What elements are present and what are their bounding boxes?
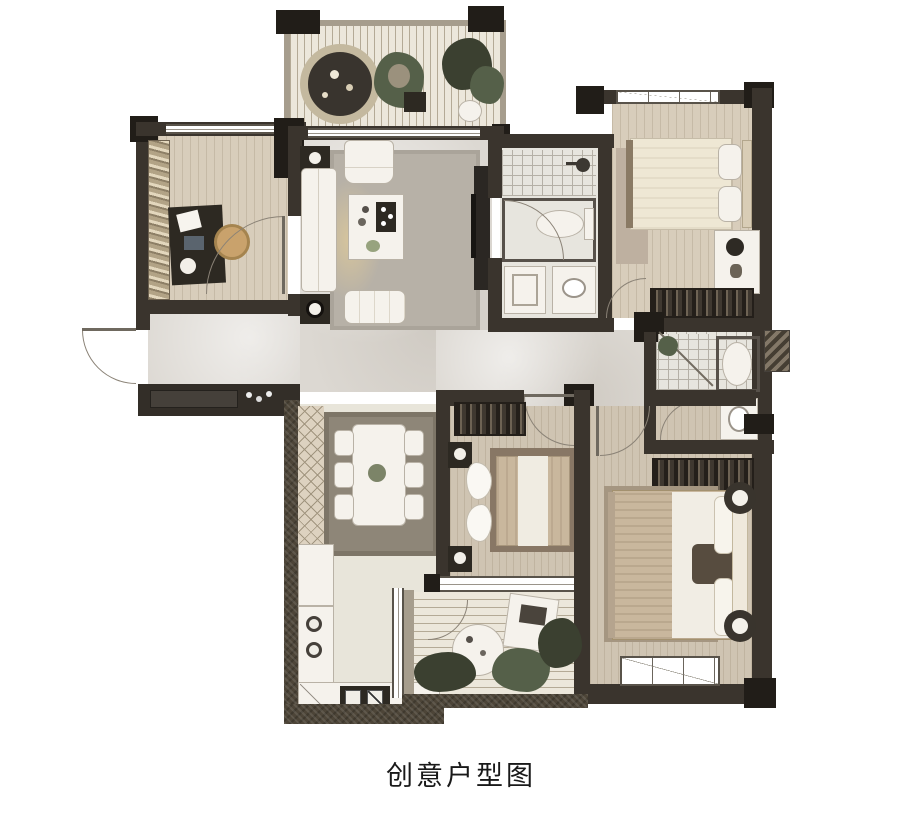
balcony-rail-west: [404, 590, 414, 700]
bedroom-north-headboard: [742, 140, 752, 228]
dining-chair: [404, 494, 424, 520]
nightstand-lamp: [454, 448, 466, 460]
cooktop-burner: [306, 616, 322, 632]
bedroom-north-bed: [630, 138, 732, 230]
tv-screen: [471, 194, 476, 258]
plan-caption: 创意户型图: [0, 754, 922, 793]
master-door-leaf: [596, 406, 599, 456]
bath-main-cabinet-inner: [512, 274, 538, 306]
dining-tiled-band: [298, 406, 324, 544]
dining-chair: [404, 430, 424, 456]
lounge-cushion: [519, 604, 547, 625]
coffee-table-plant: [366, 240, 380, 252]
fire-pit-decor-dot: [330, 70, 339, 79]
coffee-table-decor: [358, 218, 366, 226]
toilet-main-tank: [584, 208, 594, 240]
tray-decor-dot: [381, 221, 386, 226]
nightstand-lamp: [454, 552, 466, 564]
bath-main-wall-west-upper: [488, 134, 502, 198]
living-bench: [344, 290, 406, 324]
balcony-table-decor: [466, 636, 473, 643]
master-window: [620, 656, 720, 686]
dining-chair: [334, 462, 354, 488]
bedroom-north-wardrobe: [650, 288, 754, 318]
bedroom-north-bed-footboard: [626, 140, 633, 228]
ensuite-wall-south: [644, 440, 774, 454]
bath-main-sink: [562, 278, 586, 298]
dining-chair: [334, 494, 354, 520]
fire-pit-table: [300, 44, 380, 124]
bedroom-middle-wardrobe: [454, 402, 526, 436]
balcony-pillar-nw: [424, 574, 440, 592]
bedroom-north-wall-south-e: [646, 318, 772, 332]
corridor-wall-south-east: [650, 390, 756, 406]
east-wall-pillar: [744, 414, 774, 434]
kitchen-counter-upper: [298, 544, 334, 606]
balcony-wall-south: [402, 694, 588, 708]
ensuite-toilet: [722, 342, 752, 386]
living-sofa: [301, 168, 337, 292]
tray-decor-dot: [388, 214, 393, 219]
ac-platform-east: [764, 330, 790, 372]
bedroom-middle-door-leaf: [524, 394, 574, 397]
dining-centerpiece: [368, 464, 386, 482]
study-wall-south: [136, 300, 304, 314]
study-bookshelf: [148, 140, 170, 300]
bedroom-north-window: [616, 90, 720, 104]
master-lamp: [732, 618, 748, 634]
bedroom-middle-balcony-door: [438, 576, 588, 592]
terrace-plant-small: [470, 66, 504, 104]
study-laptop: [184, 236, 204, 250]
fire-pit-decor-dot: [322, 92, 328, 98]
terrace-pillar-nw: [276, 10, 320, 34]
bath-main-wall-south: [488, 318, 614, 332]
side-table-lamp: [309, 152, 321, 164]
entry-door-leaf: [82, 328, 136, 331]
bedroom-north-desk-plant: [730, 264, 742, 278]
fire-pit-decor-dot: [346, 84, 353, 91]
shower-arm: [566, 162, 578, 165]
balcony-table-decor: [480, 650, 486, 656]
wall-junction: [574, 390, 590, 406]
terrace-teddy-face: [388, 64, 410, 88]
bedroom-north-pillar-nw: [576, 86, 604, 114]
bedroom-north-desk-decor: [726, 238, 744, 256]
floor-plan-page: 创意户型图: [0, 0, 922, 832]
entry-console-decor: [246, 392, 252, 398]
coffee-table-tray: [376, 202, 396, 232]
study-desk-mug: [180, 258, 196, 274]
bedroom-north-pillow: [718, 186, 742, 222]
bedroom-north-wall-south-w: [598, 318, 606, 332]
bedroom-north-pillow: [718, 144, 742, 180]
bath-main-shower: [502, 150, 596, 196]
study-door-leaf: [282, 216, 285, 294]
living-armchair: [344, 140, 394, 184]
study-wall-east-upper: [288, 132, 302, 216]
living-terrace-window: [308, 128, 480, 138]
entry-console-decor: [256, 396, 262, 402]
entry-console-runner: [150, 390, 238, 408]
terrace-pillar-ne: [468, 6, 504, 32]
coffee-table-decor: [362, 206, 369, 213]
tray-decor-dot: [381, 207, 386, 212]
bedroom-middle-pillow: [466, 504, 492, 542]
terrace-pot: [458, 100, 482, 122]
study-window: [166, 124, 274, 134]
dining-chair: [404, 462, 424, 488]
bath-main-wall-north: [488, 134, 614, 148]
shower-head: [576, 158, 590, 172]
terrace-tray: [404, 92, 426, 112]
master-pillar-se: [744, 678, 776, 708]
side-table-speaker: [306, 300, 324, 318]
master-lamp: [732, 490, 748, 506]
master-bed-footboard: [608, 492, 615, 638]
kitchen-balcony-window: [392, 588, 404, 698]
dining-chair: [334, 430, 354, 456]
entry-console-decor: [266, 391, 272, 397]
ensuite-plant: [658, 336, 678, 356]
bedroom-middle-bed-runner: [518, 456, 548, 546]
cooktop-burner: [306, 642, 322, 658]
